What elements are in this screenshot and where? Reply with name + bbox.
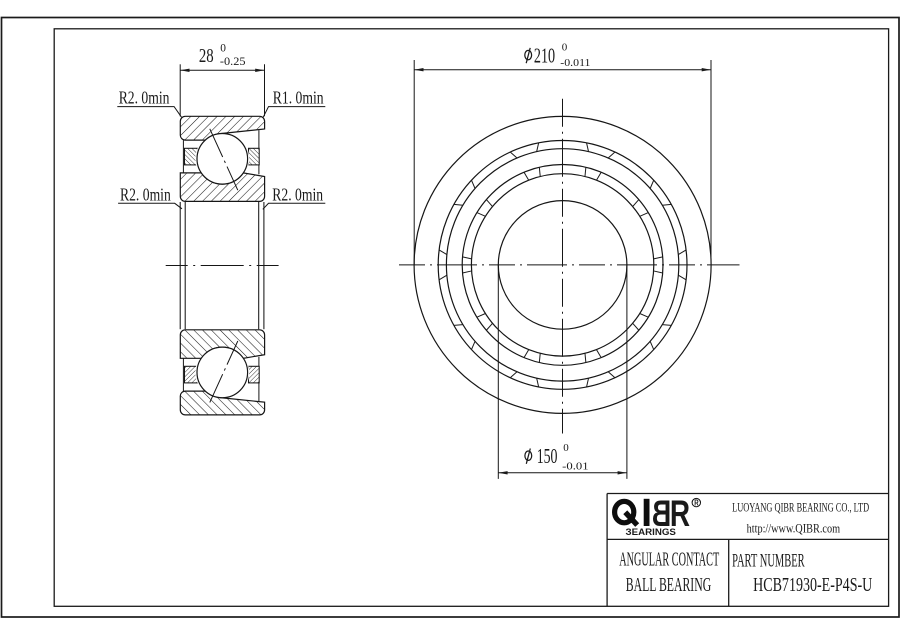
svg-text:BALL BEARING: BALL BEARING: [626, 575, 711, 596]
svg-text:0: 0: [563, 442, 569, 454]
svg-text:R2. 0min: R2. 0min: [272, 185, 323, 205]
svg-text:0: 0: [220, 43, 226, 55]
svg-text:-0.011: -0.011: [560, 57, 590, 69]
svg-text:R2. 0min: R2. 0min: [119, 87, 170, 107]
svg-text:R1. 0min: R1. 0min: [273, 87, 324, 107]
svg-text:PART NUMBER: PART NUMBER: [732, 550, 805, 571]
svg-text:http://www.QIBR.com: http://www.QIBR.com: [747, 520, 841, 535]
svg-text:R2. 0min: R2. 0min: [120, 185, 171, 205]
svg-text:-0.01: -0.01: [562, 460, 588, 472]
svg-text:150: 150: [537, 444, 558, 468]
svg-text:28: 28: [199, 45, 214, 67]
svg-text:210: 210: [534, 44, 555, 68]
svg-text:-0.25: -0.25: [220, 56, 246, 68]
svg-text:HCB71930-E-P4S-U: HCB71930-E-P4S-U: [753, 575, 872, 596]
svg-text:0: 0: [562, 41, 568, 53]
svg-text:ЗEARINGS: ЗEARINGS: [626, 527, 677, 537]
svg-text:ANGULAR CONTACT: ANGULAR CONTACT: [619, 549, 719, 570]
svg-text:LUOYANG QIBR BEARING CO., LTD: LUOYANG QIBR BEARING CO., LTD: [732, 500, 869, 514]
svg-text:R: R: [694, 499, 699, 508]
